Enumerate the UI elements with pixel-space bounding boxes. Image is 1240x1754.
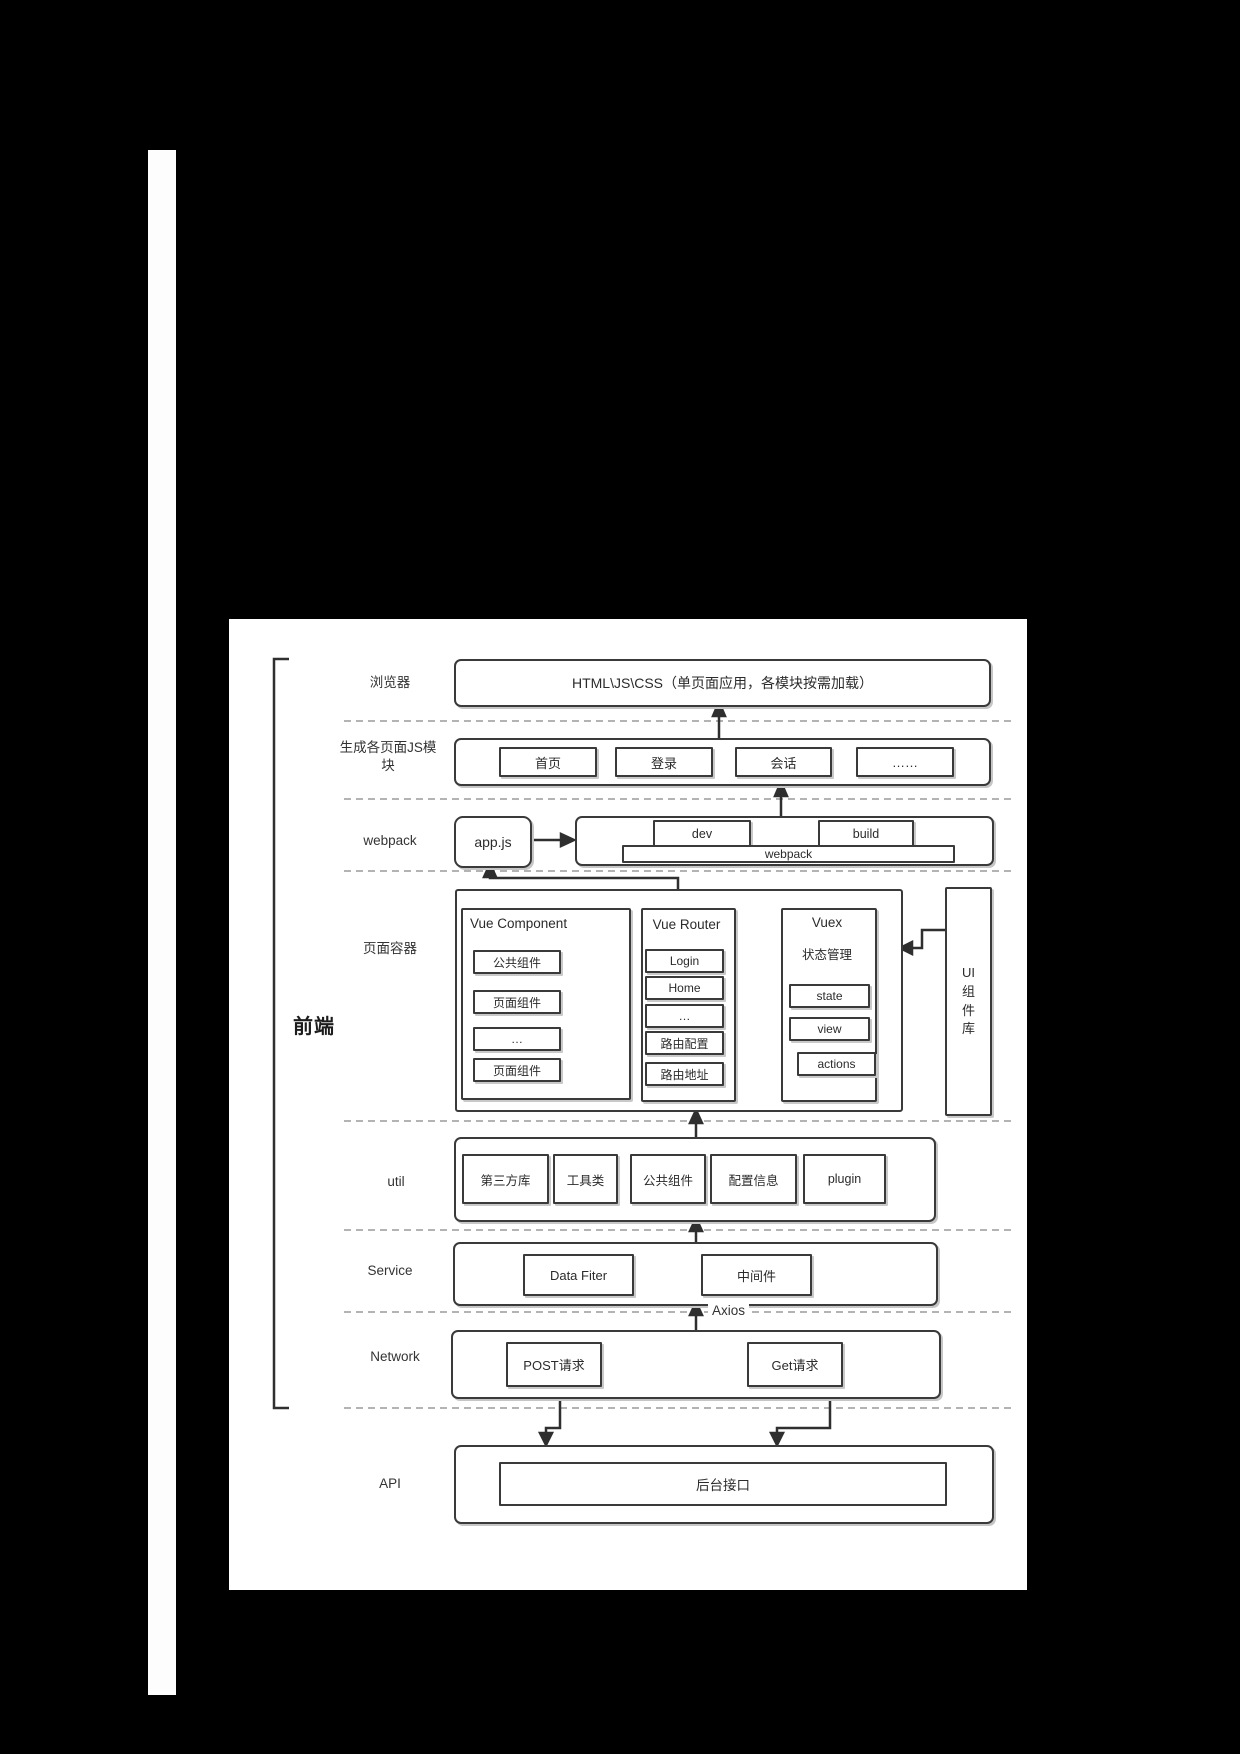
util-item-plugin: plugin xyxy=(803,1154,886,1204)
ui-library-text: UI组件库 xyxy=(959,964,979,1039)
scanned-page: 前端 浏览器 HTML\JS\CSS（单页面应用，各模块按需加载） 生成各页面J… xyxy=(0,0,1240,1754)
network-item-post: POST请求 xyxy=(506,1342,602,1387)
vue-component-item-ellipsis: … xyxy=(473,1027,561,1051)
row-label-browser: 浏览器 xyxy=(330,674,450,692)
vue-router-item-address: 路由地址 xyxy=(645,1062,724,1086)
vue-router-title: Vue Router xyxy=(641,917,732,932)
webpack-bar-box: webpack xyxy=(622,845,955,863)
row-label-webpack: webpack xyxy=(330,832,450,850)
row-label-service: Service xyxy=(330,1262,450,1280)
util-item-config: 配置信息 xyxy=(710,1154,797,1204)
vue-component-item-page2: 页面组件 xyxy=(473,1058,561,1082)
module-box-session: 会话 xyxy=(735,747,832,777)
vuex-item-actions: actions xyxy=(797,1052,876,1076)
row-label-api: API xyxy=(330,1475,450,1493)
browser-box: HTML\JS\CSS（单页面应用，各模块按需加载） xyxy=(454,659,991,707)
vue-component-item-page1: 页面组件 xyxy=(473,990,561,1014)
row-label-modules: 生成各页面JS模块 xyxy=(338,739,438,775)
vue-router-item-home: Home xyxy=(645,976,724,1000)
module-box-login: 登录 xyxy=(615,747,713,777)
vuex-item-state: state xyxy=(789,984,870,1008)
vuex-item-view: view xyxy=(789,1017,870,1041)
appjs-box: app.js xyxy=(454,816,532,868)
vue-router-item-ellipsis: … xyxy=(645,1004,724,1028)
vue-router-item-login: Login xyxy=(645,949,724,973)
module-box-more: …… xyxy=(856,747,954,777)
row-label-util: util xyxy=(336,1173,456,1191)
paper-left-margin xyxy=(148,150,176,1695)
axios-label: Axios xyxy=(708,1303,749,1318)
service-item-datafilter: Data Fiter xyxy=(523,1254,634,1296)
module-box-home: 首页 xyxy=(499,747,597,777)
vue-component-item-shared: 公共组件 xyxy=(473,950,561,974)
vuex-subtitle: 状态管理 xyxy=(781,944,873,963)
ui-library-box: UI组件库 xyxy=(945,887,992,1116)
webpack-build-box: build xyxy=(818,820,914,847)
util-item-shared: 公共组件 xyxy=(630,1154,706,1204)
row-label-container: 页面容器 xyxy=(330,940,450,958)
api-backend-box: 后台接口 xyxy=(499,1462,947,1506)
util-item-thirdparty: 第三方库 xyxy=(462,1154,549,1204)
vue-component-title: Vue Component xyxy=(470,916,567,931)
row-label-network: Network xyxy=(335,1348,455,1366)
service-item-middleware: 中间件 xyxy=(701,1254,812,1296)
frontend-bracket-label: 前端 xyxy=(278,1010,350,1039)
webpack-dev-box: dev xyxy=(653,820,751,847)
network-item-get: Get请求 xyxy=(747,1342,843,1387)
util-item-tools: 工具类 xyxy=(553,1154,618,1204)
vue-router-item-config: 路由配置 xyxy=(645,1031,724,1055)
vuex-title: Vuex xyxy=(781,915,873,930)
browser-box-text: HTML\JS\CSS（单页面应用，各模块按需加载） xyxy=(572,673,873,693)
